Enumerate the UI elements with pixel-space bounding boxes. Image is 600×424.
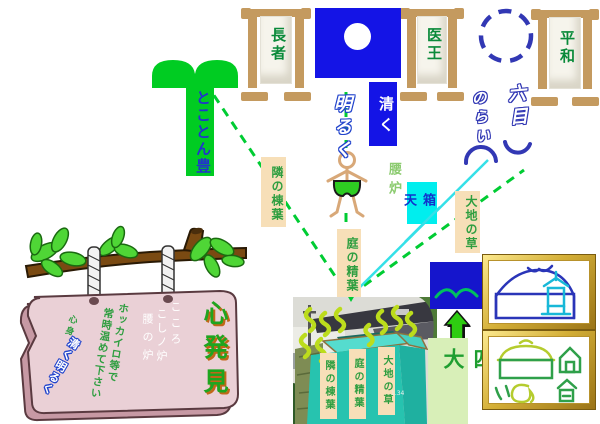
pot-body — [500, 360, 552, 378]
diagram-canvas: 隣の棟葉 庭の精葉 大地の草 1.34 — [0, 0, 600, 424]
label-garden-leaves: 庭の精葉 — [337, 229, 361, 297]
lantern-body — [548, 288, 564, 306]
leaf — [48, 225, 72, 254]
scroll-foot — [400, 92, 427, 101]
flag-circle — [344, 23, 371, 50]
banner-label: 長者 — [268, 27, 289, 63]
blue-flag — [315, 8, 401, 78]
small-house-door — [566, 362, 574, 372]
gold-frame-bottom — [483, 331, 595, 409]
label-earth-grass: 大地の草 — [455, 191, 480, 253]
strokes-i — [496, 386, 509, 399]
motto-tokoton: とことん豊 — [186, 88, 214, 176]
slogan-kiyoku: 清く — [369, 82, 397, 146]
banner-heiwa: 平和 — [535, 10, 595, 106]
green-shorts — [334, 181, 360, 196]
sign-inscription-column: こしノ炉 — [153, 308, 169, 374]
pot-drawing — [488, 336, 590, 404]
sign-inscription-column: こころ — [167, 301, 183, 359]
small-box-roof — [558, 380, 576, 388]
scroll-post — [538, 15, 547, 89]
scroll-foot — [437, 92, 464, 101]
sign-title: 心発見 — [198, 300, 232, 410]
small-house — [560, 348, 580, 372]
scroll-post — [248, 14, 257, 88]
scroll-post — [295, 14, 304, 88]
label-neighbor-leaves: 隣の棟葉 — [261, 157, 286, 227]
sign-hole-left — [89, 297, 99, 305]
scroll-foot — [284, 92, 311, 101]
banner-label: 平和 — [557, 30, 578, 66]
up-arrow — [445, 311, 469, 339]
net-drawing — [488, 260, 590, 324]
frame-canvas — [488, 336, 590, 404]
scroll-foot — [572, 97, 599, 106]
dashed-circle — [481, 11, 531, 61]
curl-no — [512, 385, 533, 402]
banner-choja: 長者 — [245, 9, 307, 101]
blue-box — [430, 262, 483, 309]
scroll-post — [583, 15, 592, 89]
sign-inscription-column: 腰の炉 — [139, 313, 155, 383]
scroll-foot — [241, 92, 268, 101]
heart-crown — [152, 60, 238, 88]
scroll-foot — [531, 97, 558, 106]
pot-lid — [498, 341, 554, 361]
banner-io: 医王 — [404, 9, 460, 101]
slogan-akaruku: 明るく — [328, 76, 354, 180]
banner-label: 医王 — [424, 27, 445, 63]
four-elements-box: 四大 — [428, 338, 468, 424]
label-box-heaven: 箱天 — [407, 182, 437, 224]
frame-canvas — [488, 260, 590, 324]
gold-frame-top — [483, 255, 595, 329]
scroll-post — [407, 14, 416, 88]
scroll-post — [448, 14, 457, 88]
dome-bow — [528, 266, 552, 271]
